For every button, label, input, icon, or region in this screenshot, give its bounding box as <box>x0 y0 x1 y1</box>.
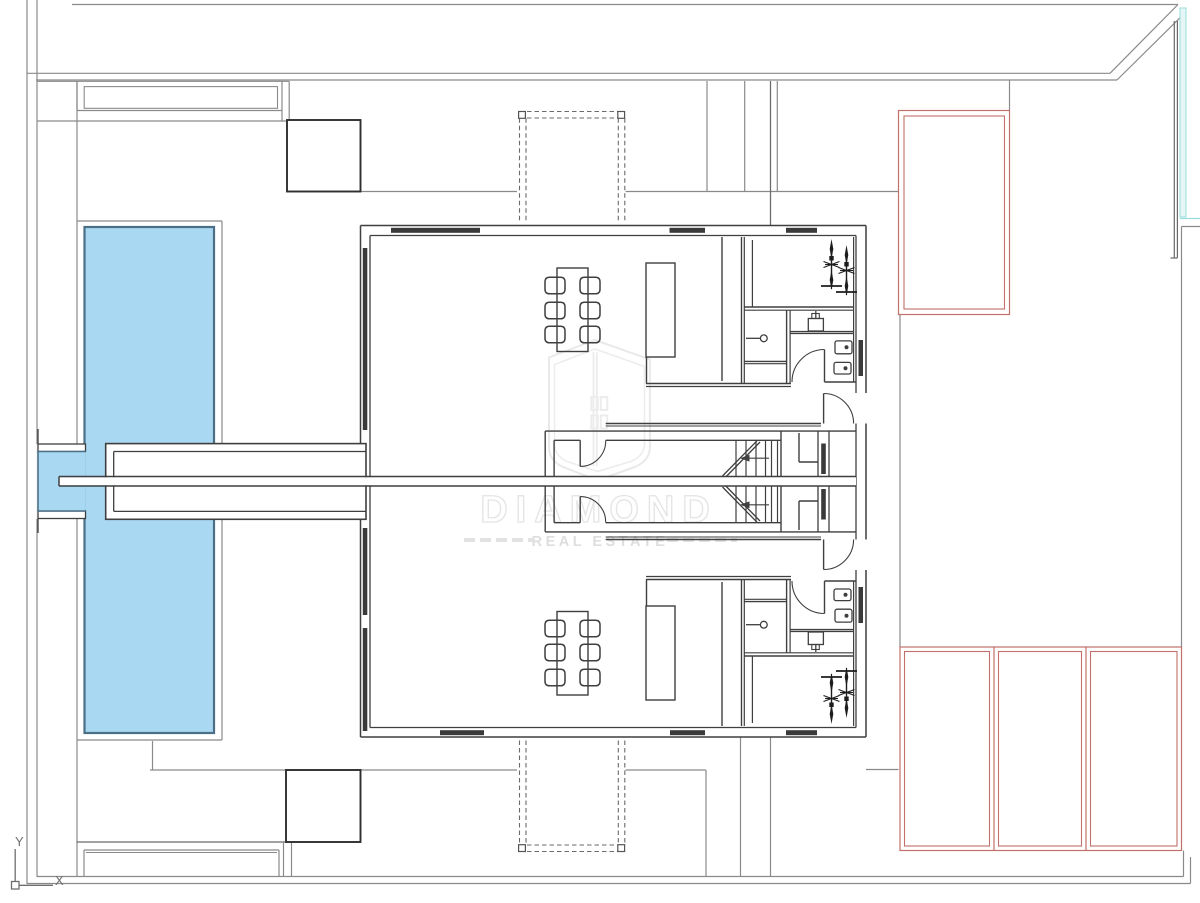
svg-text:X: X <box>55 873 64 888</box>
svg-text:DIAMOND: DIAMOND <box>480 489 718 531</box>
svg-text:REAL ESTATE: REAL ESTATE <box>532 534 669 550</box>
svg-text:Y: Y <box>15 834 24 849</box>
